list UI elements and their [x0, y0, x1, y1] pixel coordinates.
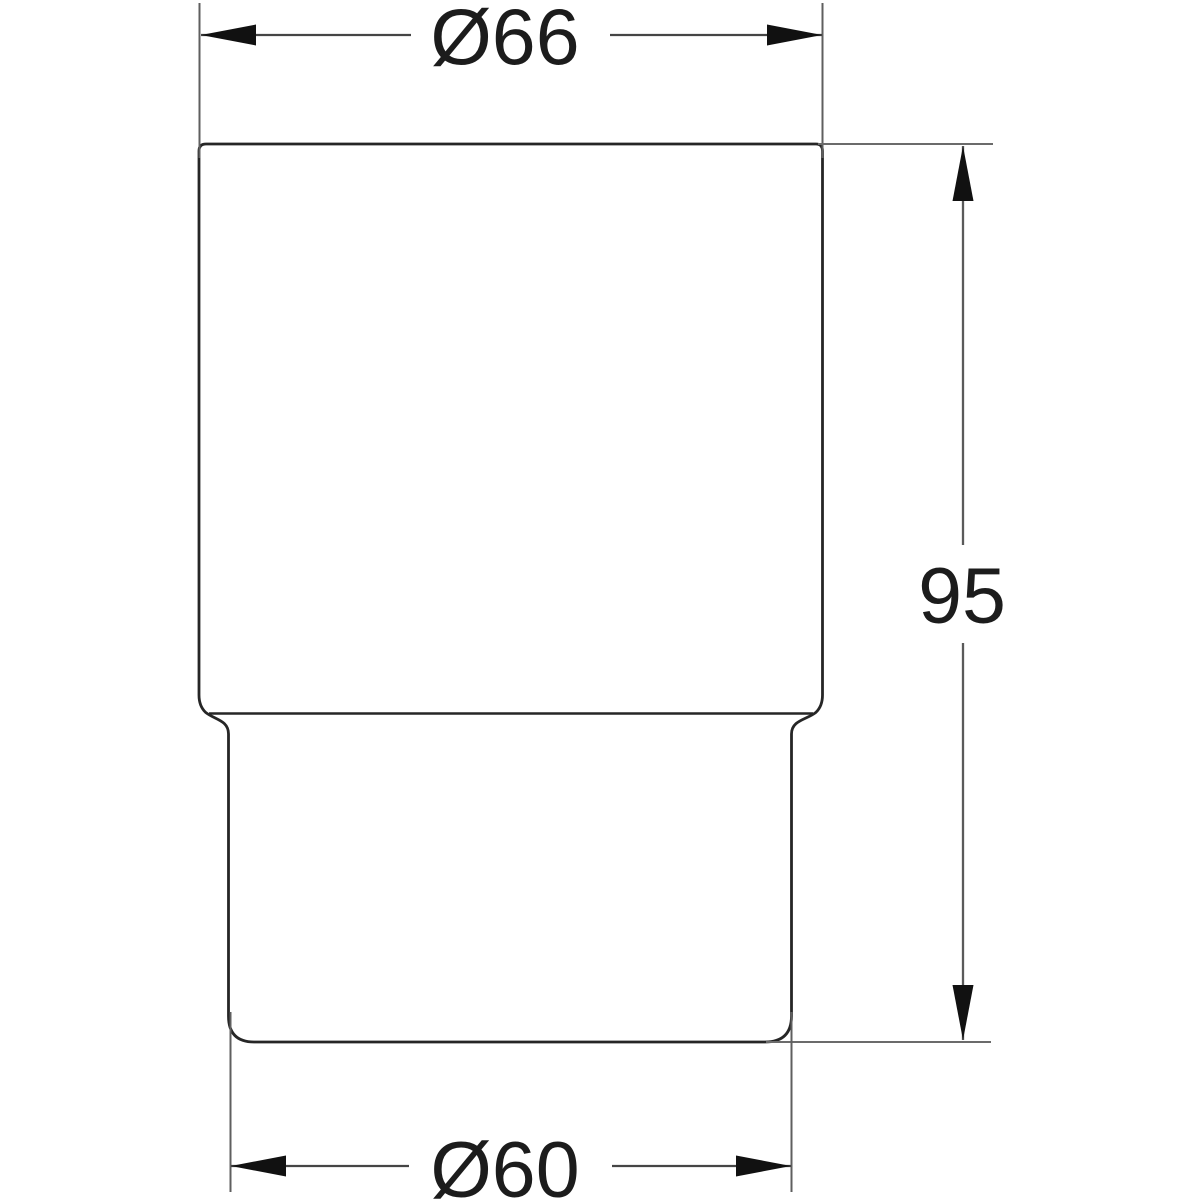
svg-text:95: 95	[918, 551, 1006, 640]
svg-text:Ø66: Ø66	[430, 0, 579, 81]
svg-text:Ø60: Ø60	[430, 1125, 579, 1200]
